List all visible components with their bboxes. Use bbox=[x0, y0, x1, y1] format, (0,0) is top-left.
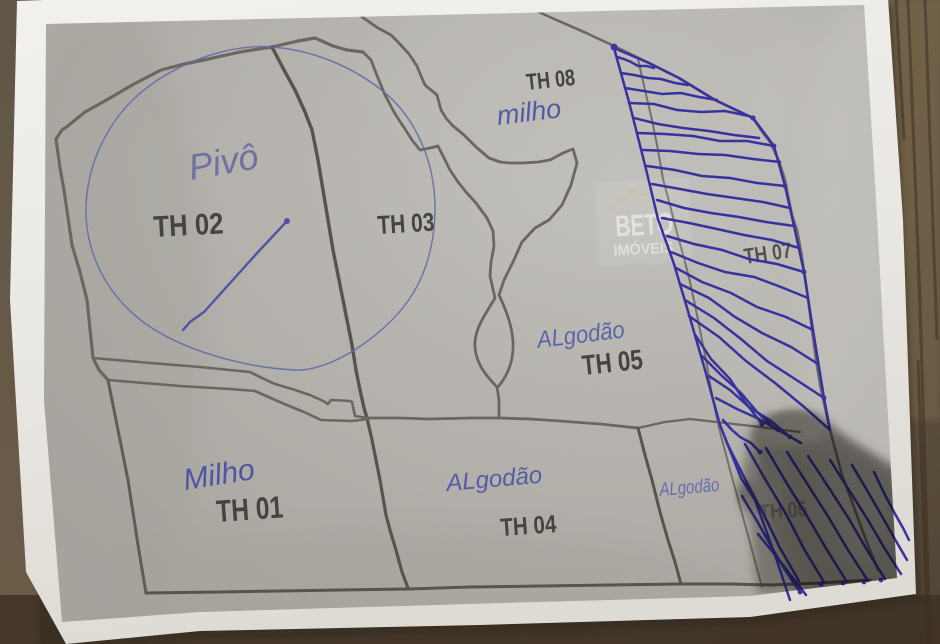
svg-text:TH 02: TH 02 bbox=[153, 207, 225, 244]
svg-text:TH 04: TH 04 bbox=[499, 510, 557, 542]
svg-text:TH 05: TH 05 bbox=[580, 344, 644, 381]
svg-text:TH 01: TH 01 bbox=[215, 489, 284, 529]
svg-text:TH 08: TH 08 bbox=[525, 64, 577, 95]
svg-text:TH 03: TH 03 bbox=[377, 207, 436, 240]
